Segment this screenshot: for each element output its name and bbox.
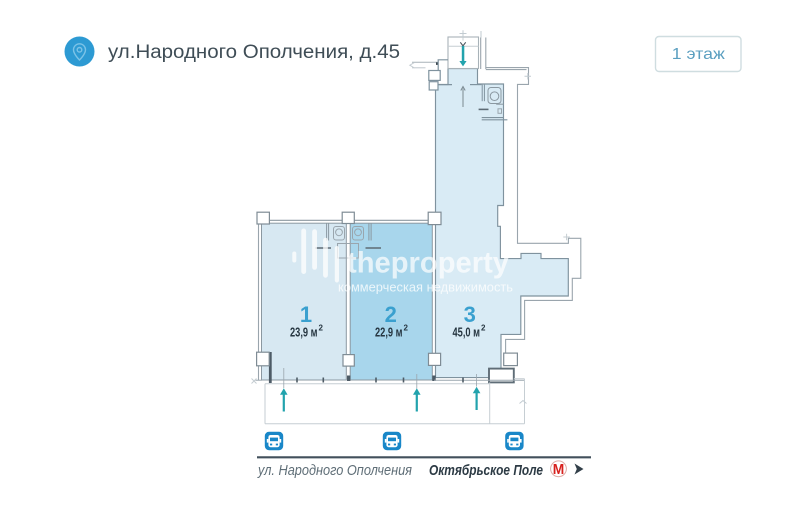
svg-text:23,9 м: 23,9 м: [290, 326, 318, 340]
svg-text:2: 2: [385, 302, 397, 327]
svg-text:2: 2: [481, 324, 486, 333]
svg-text:2: 2: [319, 324, 324, 333]
svg-text:ул.Народного Ополчения, д.45: ул.Народного Ополчения, д.45: [108, 42, 400, 63]
svg-text:theproperty: theproperty: [347, 247, 509, 280]
svg-text:1: 1: [300, 302, 312, 327]
svg-text:22,9 м: 22,9 м: [375, 326, 403, 340]
svg-text:1 этаж: 1 этаж: [672, 46, 725, 63]
svg-text:45,0 м: 45,0 м: [453, 326, 481, 340]
svg-text:М: М: [553, 461, 565, 478]
svg-text:3: 3: [464, 302, 476, 327]
svg-text:ул. Народного Ополчения: ул. Народного Ополчения: [257, 462, 412, 479]
svg-text:Октябрьское Поле: Октябрьское Поле: [429, 462, 543, 479]
svg-text:коммерческая недвижимость: коммерческая недвижимость: [338, 281, 513, 295]
svg-text:2: 2: [404, 324, 409, 333]
